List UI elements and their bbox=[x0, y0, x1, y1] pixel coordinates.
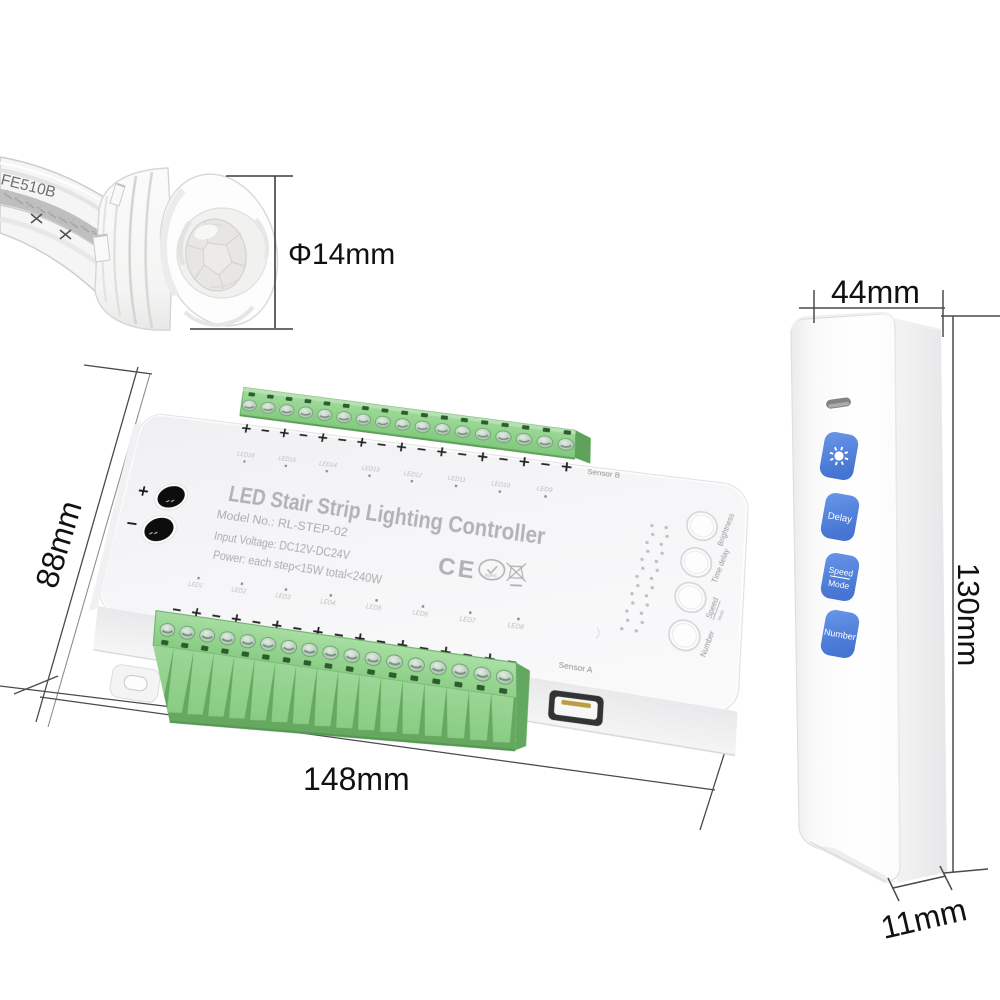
svg-text:130mm: 130mm bbox=[951, 563, 986, 666]
svg-text:Φ14mm: Φ14mm bbox=[288, 238, 395, 271]
svg-text:44mm: 44mm bbox=[831, 274, 920, 310]
svg-text:RoHS: RoHS bbox=[485, 573, 498, 579]
